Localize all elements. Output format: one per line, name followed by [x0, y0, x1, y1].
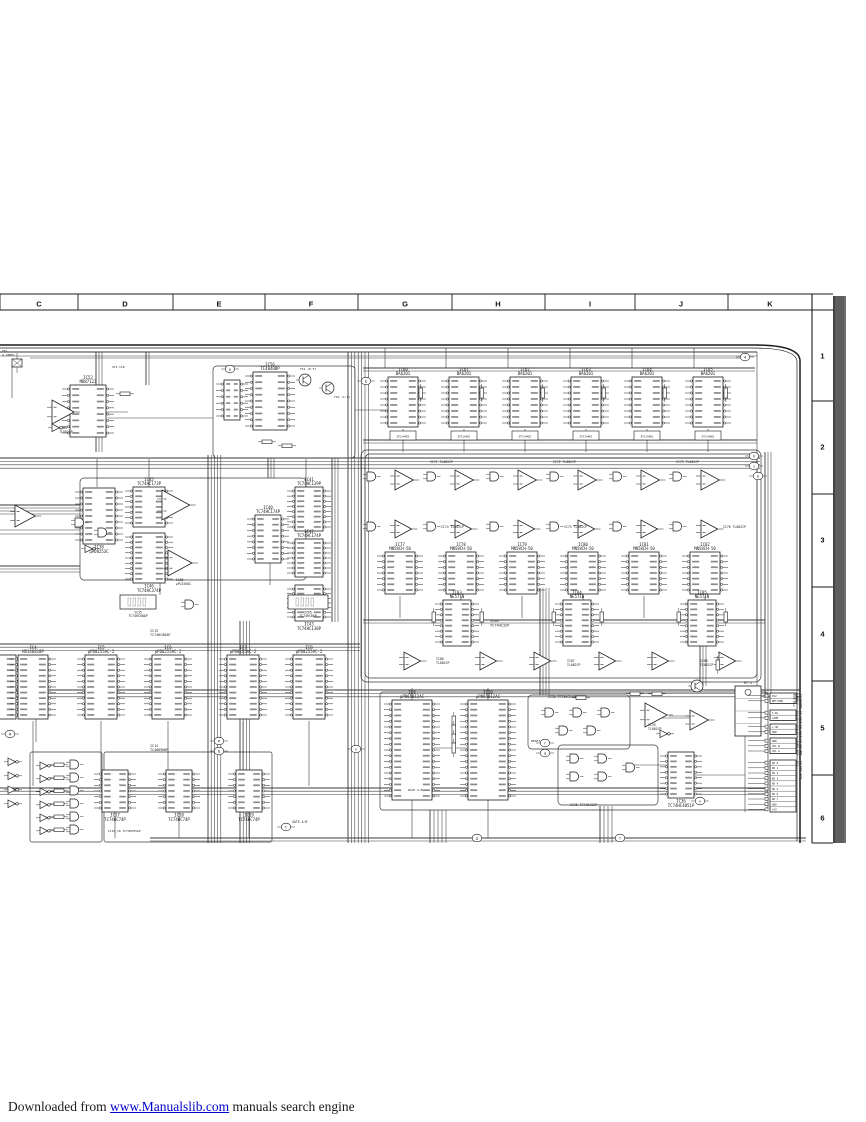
svg-text:DTC144ES: DTC144ES	[641, 435, 654, 439]
grid-col-label-I: I	[589, 300, 591, 309]
dip-ic84-ne571n: IC84NE571N	[555, 590, 599, 646]
opamp	[390, 470, 419, 490]
svg-text:HD146818P: HD146818P	[22, 649, 44, 654]
dip-ic19-tc74hc74p: IC19TC74HC74P	[228, 770, 270, 822]
svg-text:TC74HC74P: TC74HC74P	[238, 817, 260, 822]
grid-col-label-H: H	[495, 300, 500, 309]
svg-text:TO VOLUMELEVER PCB: TO VOLUMELEVER PCB	[795, 739, 803, 755]
svg-text:TL082CP: TL082CP	[648, 727, 662, 731]
svg-text:TC74HC00AP: TC74HC00AP	[150, 633, 170, 637]
svg-text:q: q	[544, 750, 546, 755]
opamp	[157, 490, 196, 520]
svg-text:TO JACKPCB P13: TO JACKPCB P13	[795, 711, 803, 724]
svg-text:LAMP: LAMP	[772, 716, 779, 720]
opamp	[696, 470, 725, 490]
svg-text:4.19MHz: 4.19MHz	[2, 353, 15, 357]
svg-text:TL082CP: TL082CP	[567, 663, 581, 667]
svg-text:TC74HC74P: TC74HC74P	[168, 817, 190, 822]
svg-text:TC74HC74P: TC74HC74P	[104, 817, 126, 822]
svg-text:TC74HC86P: TC74HC86P	[299, 614, 316, 618]
opamp	[636, 520, 664, 538]
dip-ic6-pd8255ac-2: IC6µPD8255AC-2	[144, 645, 192, 719]
svg-text:KD 0: KD 0	[772, 761, 779, 765]
svg-text:TC74HC174P: TC74HC174P	[256, 509, 281, 514]
schematic-canvas: IC52MB87123IC56TC4040BPIC60BA6201IC61BA6…	[0, 0, 866, 1122]
svg-text:TL082CP: TL082CP	[700, 663, 714, 667]
footer-suffix-text: manuals search engine	[229, 1099, 355, 1114]
svg-text:TL082CP: TL082CP	[59, 430, 73, 434]
svg-text:IC73 TL082CP: IC73 TL082CP	[676, 460, 699, 464]
svg-text:L.SH: L.SH	[772, 725, 779, 729]
svg-text:BA6201: BA6201	[701, 371, 716, 376]
svg-text:DTC144ES: DTC144ES	[519, 435, 532, 439]
opamp	[573, 520, 601, 538]
dip-ic7-pd8255ac-2: IC7µPD8255AC-2	[219, 645, 267, 719]
dip-ic46-tc74hc374p: IC46TC74HC374P	[125, 533, 173, 593]
opamp	[450, 520, 478, 538]
dip-ic52-mb87123: IC52MB87123	[62, 375, 114, 437]
svg-text:NE571N: NE571N	[450, 594, 465, 599]
manualslib-link[interactable]: www.Manualslib.com	[110, 1099, 229, 1114]
svg-text:TC74HC32P: TC74HC32P	[490, 623, 509, 627]
svg-text:T52 (C·F): T52 (C·F)	[334, 395, 350, 399]
dip-ics: IC52MB87123IC56TC4040BPIC60BA6201IC61BA6…	[0, 362, 731, 822]
svg-text:TC4040BP: TC4040BP	[260, 366, 280, 371]
svg-text:RY·1: RY·1	[744, 681, 752, 685]
svg-text:GATE A·B: GATE A·B	[292, 820, 307, 824]
svg-text:µPD8255AC-2: µPD8255AC-2	[88, 649, 115, 654]
svg-text:s: s	[355, 746, 357, 751]
svg-text:P12: P12	[772, 694, 777, 698]
svg-text:BA6201: BA6201	[640, 371, 655, 376]
opamp	[10, 505, 41, 527]
grid-row-label-2: 2	[820, 443, 824, 452]
dip-ic10-pd65012ac: IC10µPD65012AC	[460, 690, 516, 800]
svg-text:DACK A·B: DACK A·B	[408, 788, 423, 792]
opamp: IC66µPC4558C	[163, 550, 198, 586]
dip-ic41-tc74hc139p: IC41TC74HC139P	[287, 477, 331, 531]
svg-text:BA6201: BA6201	[457, 371, 472, 376]
svg-text:MN58CH-50: MN58CH-50	[450, 546, 472, 551]
svg-text:BA6201: BA6201	[579, 371, 594, 376]
svg-text:TC74HC173P: TC74HC173P	[137, 481, 162, 486]
svg-text:g: g	[476, 835, 478, 840]
svg-text:IC75 TL082CP: IC75 TL082CP	[564, 525, 587, 529]
schematic-scan-area: IC52MB87123IC56TC4040BPIC60BA6201IC61BA6…	[0, 0, 866, 1122]
svg-text:KD 4: KD 4	[772, 782, 779, 786]
dip-ic77-mn58ch-50: IC77MN58CH-50	[377, 542, 423, 594]
svg-text:µPD8255AC-2: µPD8255AC-2	[296, 649, 323, 654]
svg-text:µPD65012AC: µPD65012AC	[400, 694, 425, 699]
dip-ic56-tc4040bp: IC56TC4040BP	[245, 362, 295, 430]
svg-text:f: f	[619, 835, 621, 840]
svg-text:IC74 TL082CP: IC74 TL082CP	[441, 525, 464, 529]
svg-text:GND: GND	[772, 802, 777, 806]
grid-row-label-6: 6	[820, 814, 824, 823]
opamp	[513, 470, 542, 490]
opamp	[685, 710, 714, 730]
grid-col-label-C: C	[36, 300, 42, 309]
dip-ic85-ne571n: IC85NE571N	[680, 590, 724, 646]
opamp	[450, 470, 479, 490]
opamp	[594, 652, 622, 670]
dip-ic4-hd146818p: IC4HD146818P	[10, 645, 56, 719]
opamp	[573, 470, 602, 490]
dip-ic5-pd8255ac-2: IC5µPD8255AC-2	[77, 645, 125, 719]
dip-ic78-mn58ch-50: IC78MN58CH-50	[438, 542, 484, 594]
dip-ic18-tc74hc74p: IC18TC74HC74P	[158, 770, 200, 822]
svg-text:IC35 TC74HC02P: IC35 TC74HC02P	[570, 803, 597, 807]
svg-text:µPD65012AC: µPD65012AC	[476, 694, 501, 699]
svg-text:MB87123: MB87123	[80, 379, 97, 384]
dip-ic17-tc74hc74p: IC17TC74HC74P	[94, 770, 136, 822]
opamp	[513, 520, 541, 538]
svg-text:IC71 TL082CP: IC71 TL082CP	[430, 460, 453, 464]
opamp	[399, 652, 427, 670]
svg-text:TO JACKPCB P14: TO JACKPCB P14	[795, 725, 803, 738]
dip-ic40-tc74hc174p: IC40TC74HC174P	[247, 505, 289, 563]
dip-ic79-mn58ch-50: IC79MN58CH-50	[499, 542, 545, 594]
svg-text:S.BL: S.BL	[772, 711, 779, 715]
svg-text:TC74HC138P: TC74HC138P	[297, 626, 322, 631]
grid-row-label-1: 1	[820, 352, 824, 361]
opamp	[636, 470, 665, 490]
svg-text:T51 (E·F): T51 (E·F)	[300, 367, 316, 371]
svg-text:t: t	[285, 824, 287, 829]
grid-col-label-G: G	[402, 300, 408, 309]
grid-row-label-3: 3	[820, 536, 824, 545]
svg-text:KD 3: KD 3	[772, 776, 779, 780]
grid-col-label-E: E	[216, 300, 221, 309]
svg-text:DTC144ES: DTC144ES	[702, 435, 715, 439]
grid-col-label-K: K	[767, 300, 773, 309]
opamp	[390, 520, 418, 538]
dip-ic82-mn58ch-50: IC82MN58CH-50	[682, 542, 728, 594]
svg-text:TC74HC174P: TC74HC174P	[297, 533, 322, 538]
connector-3: GNDVOL BVOL ATO VOLUMELEVER PCB	[748, 738, 803, 755]
grid-col-label-D: D	[122, 300, 128, 309]
footer-prefix-text: Downloaded from	[8, 1099, 110, 1114]
dip-ic42-tc74hc174p: IC42TC74HC174P	[287, 529, 331, 577]
svg-text:µPC4558C: µPC4558C	[176, 582, 191, 586]
opamp	[475, 652, 503, 670]
svg-text:µPD8255AC-2: µPD8255AC-2	[155, 649, 182, 654]
svg-text:KD 2: KD 2	[772, 771, 779, 775]
svg-text:TO POWERSUPPLYPCB P12: TO POWERSUPPLYPCB P12	[792, 694, 803, 709]
opamp	[640, 703, 673, 727]
svg-text:TC74HC374P: TC74HC374P	[137, 588, 162, 593]
svg-text:µPD8253C: µPD8253C	[89, 549, 109, 554]
svg-text:RET/GRN: RET/GRN	[772, 699, 783, 703]
svg-text:IC15,16 TC74HC05AP: IC15,16 TC74HC05AP	[108, 829, 141, 833]
grid-row-label-5: 5	[820, 724, 824, 733]
svg-text:VOL B: VOL B	[772, 744, 780, 748]
svg-text:TC74HC4051P: TC74HC4051P	[668, 803, 695, 808]
svg-text:NE571N: NE571N	[570, 594, 585, 599]
svg-text:KD 7: KD 7	[772, 797, 779, 801]
svg-text:MN58CH-50: MN58CH-50	[694, 546, 716, 551]
svg-text:BA6201: BA6201	[518, 371, 533, 376]
svg-text:µPD8255AC-2: µPD8255AC-2	[230, 649, 257, 654]
svg-text:VOL A: VOL A	[772, 749, 780, 753]
grid-col-label-F: F	[309, 300, 314, 309]
svg-text:TO KEY PCBP21: TO KEY PCBP21	[795, 761, 803, 779]
dip-ic81-mn58ch-50: IC81MN58CH-50	[621, 542, 667, 594]
svg-text:IC76 TL082CP: IC76 TL082CP	[723, 525, 746, 529]
svg-text:SYS CLK: SYS CLK	[112, 365, 125, 369]
opamp	[696, 520, 724, 538]
dip-ic83-ne571n: IC83NE571N	[435, 590, 479, 646]
dip-ic9-pd65012ac: IC9µPD65012AC	[384, 690, 440, 800]
svg-text:IC72 TL082CP: IC72 TL082CP	[553, 460, 576, 464]
svg-text:h: h	[753, 453, 755, 458]
svg-text:RESET: RESET	[531, 739, 540, 743]
dip-ic8-pd8255ac-2: IC8µPD8255AC-2	[285, 645, 333, 719]
svg-text:KD 1: KD 1	[772, 766, 779, 770]
svg-text:KD 5: KD 5	[772, 787, 779, 791]
svg-text:DTC144ES: DTC144ES	[397, 435, 410, 439]
footer-credit: Downloaded from www.Manualslib.com manua…	[8, 1099, 355, 1115]
dip-u2	[216, 380, 248, 420]
svg-text:DTC144ES: DTC144ES	[458, 435, 471, 439]
transistor-array-boxes: DTC144ESDTC144ESDTC144ESDTC144ESDTC144ES…	[390, 431, 721, 440]
svg-text:NE571N: NE571N	[695, 594, 710, 599]
svg-text:MN58CH-50: MN58CH-50	[572, 546, 594, 551]
scanned-manual-page: IC52MB87123IC56TC4040BPIC60BA6201IC61BA6…	[0, 0, 866, 1122]
svg-text:a: a	[229, 366, 231, 371]
grid-col-label-J: J	[679, 300, 683, 309]
svg-text:MN58CH-50: MN58CH-50	[389, 546, 411, 551]
relay: RY·1	[735, 681, 761, 736]
svg-text:IC64: IC64	[490, 619, 499, 623]
svg-text:BA6201: BA6201	[396, 371, 411, 376]
svg-text:TC74HC08AP: TC74HC08AP	[128, 614, 147, 618]
svg-text:DTC144ES: DTC144ES	[580, 435, 593, 439]
svg-text:GND: GND	[772, 730, 777, 734]
connector-4: KD 0KD 1KD 2KD 3KD 4KD 5KD 6KD 7GND+5VTO…	[748, 760, 803, 812]
svg-text:TC4069UBP: TC4069UBP	[150, 748, 168, 752]
dip-ic80-mn58ch-50: IC80MN58CH-50	[560, 542, 606, 594]
svg-text:MN58CH-50: MN58CH-50	[633, 546, 655, 551]
svg-text:TC74HC139P: TC74HC139P	[297, 481, 322, 486]
grid-row-label-4: 4	[820, 630, 825, 639]
svg-text:IC30 TC74HC21AP: IC30 TC74HC21AP	[548, 695, 577, 699]
svg-text:+5V: +5V	[772, 808, 777, 812]
svg-text:TL082CP: TL082CP	[436, 661, 450, 665]
opamp	[647, 652, 675, 670]
page-edge-bar	[833, 296, 846, 843]
svg-text:GND: GND	[772, 739, 777, 743]
svg-text:KD 6: KD 6	[772, 792, 779, 796]
svg-text:MN58CH-50: MN58CH-50	[511, 546, 533, 551]
